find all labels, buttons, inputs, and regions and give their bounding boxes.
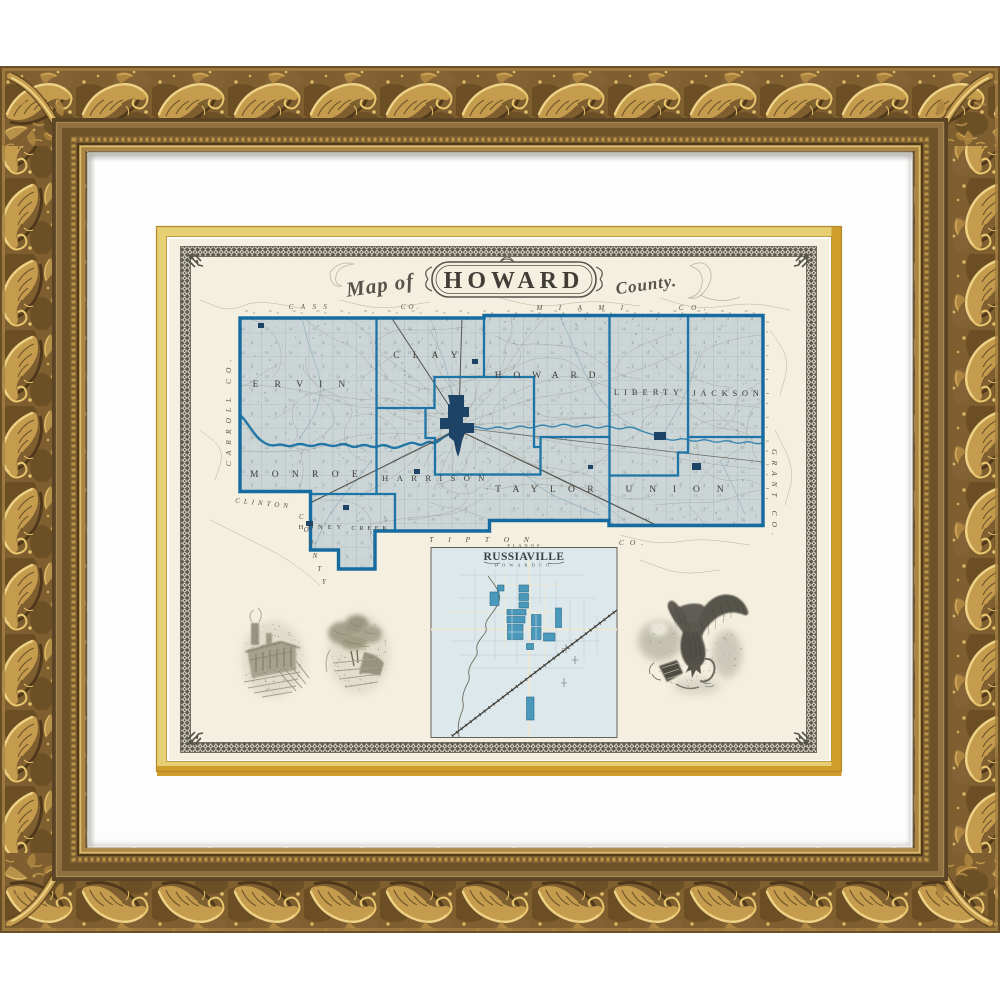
svg-text:GRANT CO.: GRANT CO. (770, 449, 779, 541)
svg-text:CREEK: CREEK (351, 525, 390, 532)
svg-text:RUSSIAVILLE: RUSSIAVILLE (484, 551, 565, 563)
svg-text:HOWARD: HOWARD (444, 268, 585, 294)
svg-text:N: N (312, 552, 318, 560)
svg-text:P L A N O F: P L A N O F (507, 543, 540, 548)
svg-text:LIBERTY: LIBERTY (614, 387, 684, 397)
svg-text:O: O (304, 526, 309, 534)
svg-text:HARRISON: HARRISON (382, 473, 493, 483)
svg-text:CARROLL CO.: CARROLL CO. (224, 354, 233, 467)
svg-text:MONROE: MONROE (250, 470, 371, 480)
svg-text:CLAY: CLAY (393, 351, 470, 361)
svg-text:H O W A R D C O.: H O W A R D C O. (495, 563, 554, 568)
svg-text:HOWARD: HOWARD (495, 371, 608, 381)
svg-text:TAYLOR: TAYLOR (495, 485, 606, 495)
svg-text:CO.: CO. (619, 538, 649, 547)
svg-text:JACKSON: JACKSON (692, 388, 763, 398)
svg-text:C: C (299, 513, 304, 521)
svg-text:CO.: CO. (401, 303, 421, 311)
svg-text:UNION: UNION (625, 485, 740, 495)
svg-text:ERVIN: ERVIN (253, 380, 362, 390)
svg-text:MIAMI: MIAMI (535, 304, 639, 312)
